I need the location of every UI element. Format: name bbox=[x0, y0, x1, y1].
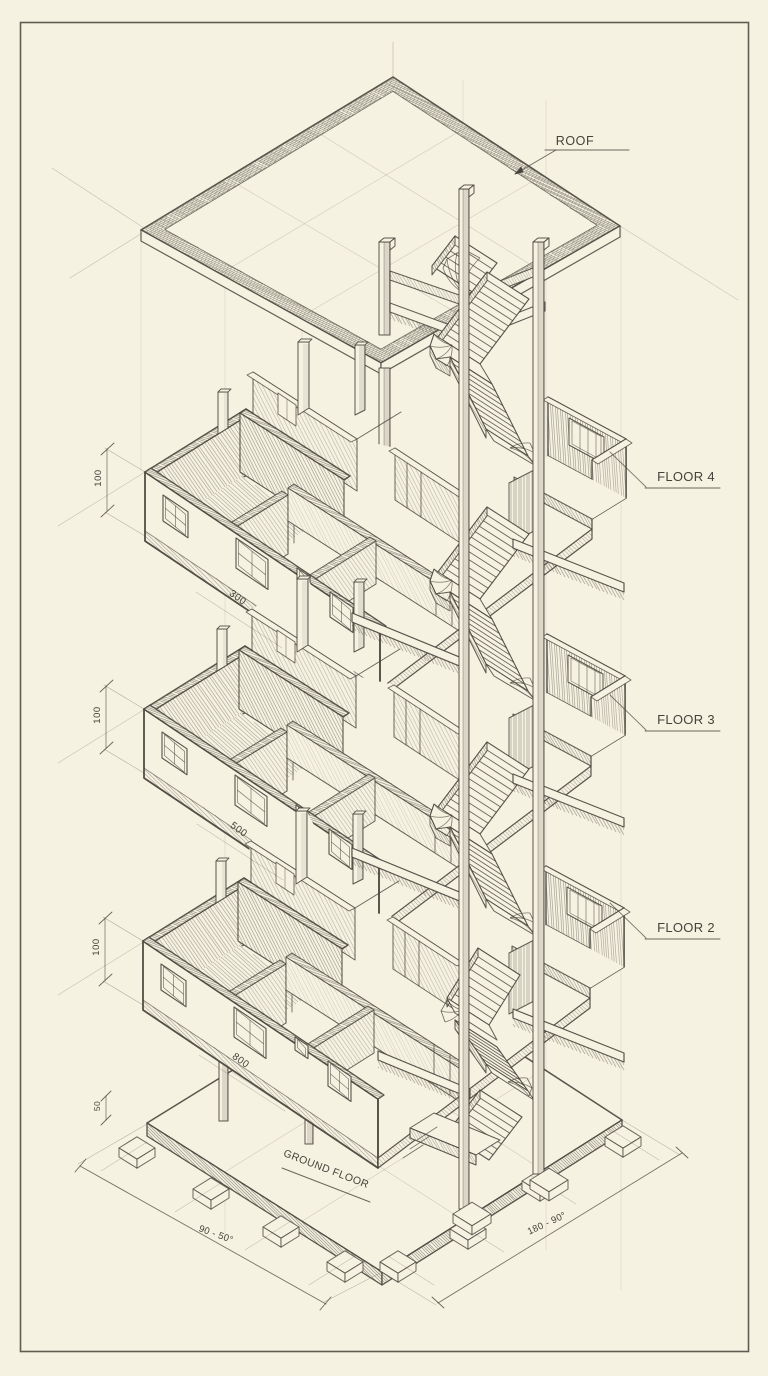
svg-text:50: 50 bbox=[92, 1101, 102, 1111]
svg-text:FLOOR 2: FLOOR 2 bbox=[657, 920, 715, 935]
svg-text:FLOOR 3: FLOOR 3 bbox=[657, 712, 715, 727]
svg-text:ROOF: ROOF bbox=[556, 134, 595, 148]
svg-text:100: 100 bbox=[92, 706, 103, 723]
svg-text:FLOOR 4: FLOOR 4 bbox=[657, 469, 715, 484]
svg-text:100: 100 bbox=[93, 469, 104, 486]
svg-text:100: 100 bbox=[91, 938, 102, 955]
